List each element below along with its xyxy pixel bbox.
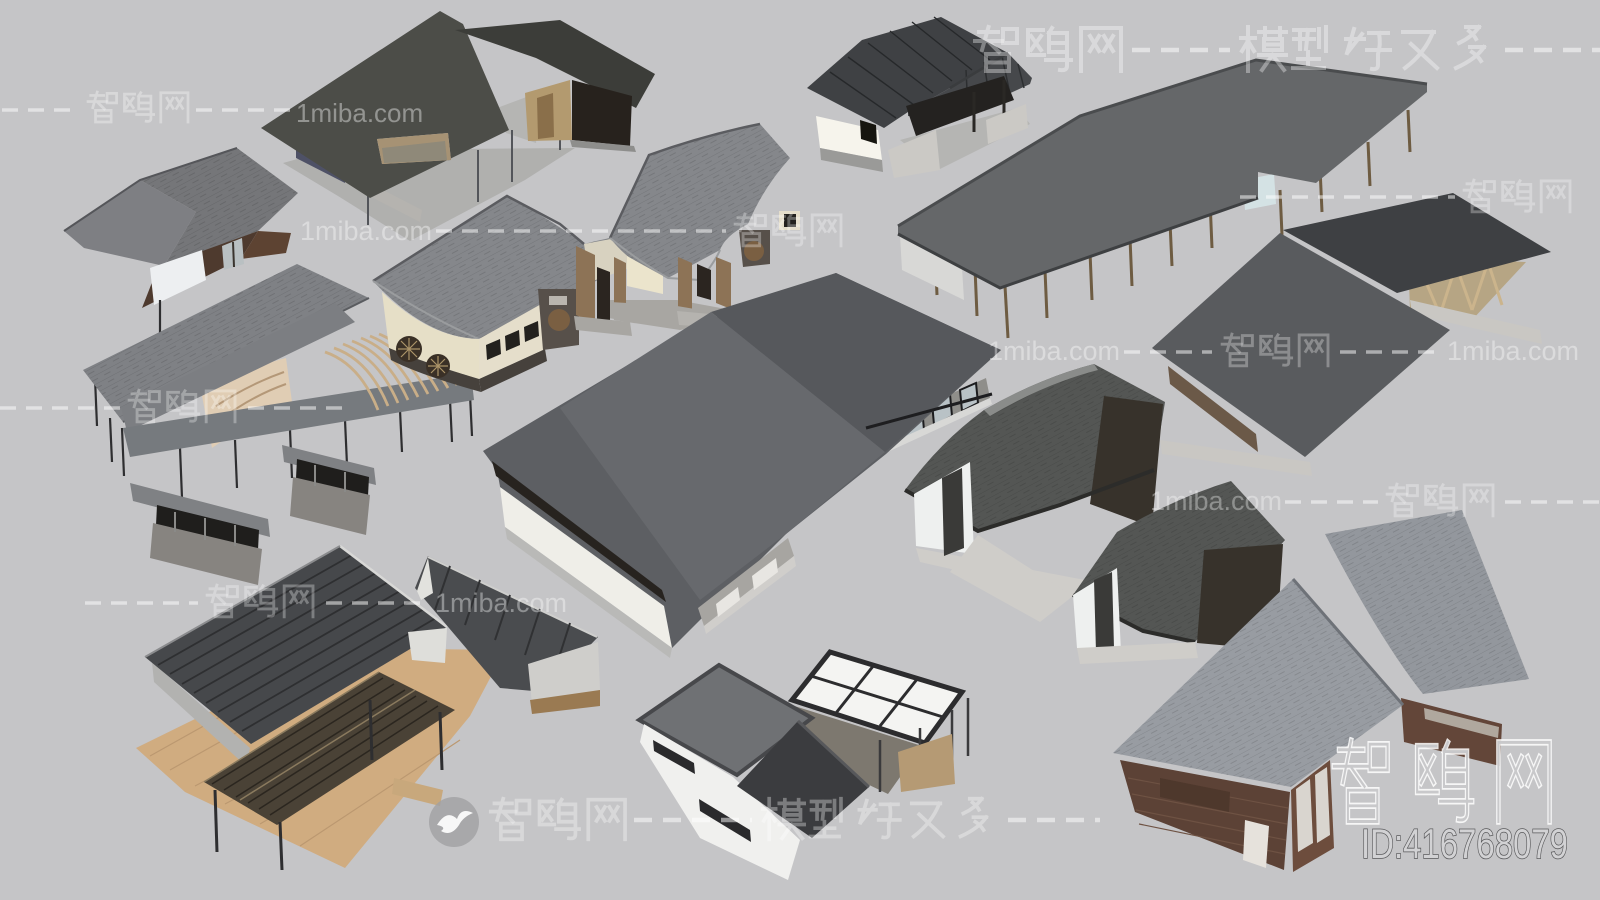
svg-text:1miba.com: 1miba.com [1150, 486, 1282, 516]
svg-text:1miba.com: 1miba.com [300, 216, 432, 246]
svg-text:1miba.com: 1miba.com [1447, 336, 1579, 366]
svg-text:1miba.com: 1miba.com [435, 588, 567, 618]
svg-text:1miba.com: 1miba.com [988, 336, 1120, 366]
svg-text:ID:416768079: ID:416768079 [1361, 820, 1568, 867]
svg-text:1miba.com: 1miba.com [296, 98, 423, 128]
